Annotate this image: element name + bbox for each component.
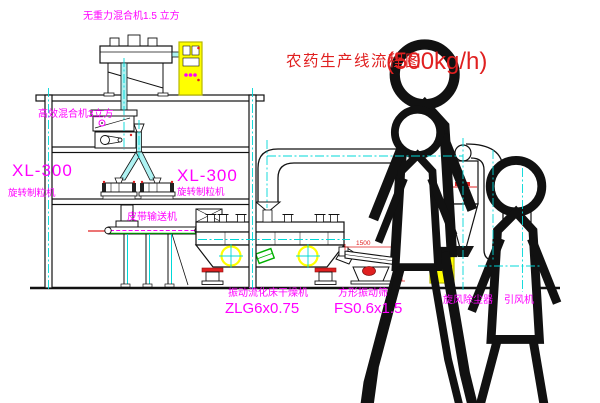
process-flow-diagram: 农药生产线流程图 (500kg/h) 无重力混合机1.5 立方 高效混合机3立方… [0, 0, 600, 403]
label-cyclone: 旋风除尘器 [443, 293, 493, 306]
fluid-bed-dryer [196, 209, 355, 285]
label-dryer-name: 振动流化床干燥机 [228, 286, 308, 299]
label-granulator-model-right: XL-300 [177, 166, 238, 185]
cad-drawing-canvas: 农药生产线流程图 (500kg/h) 无重力混合机1.5 立方 高效混合机3立方… [0, 0, 600, 403]
label-gravityless-mixer: 无重力混合机1.5 立方 [83, 9, 180, 22]
label-granulator-name-left: 旋转制粒机 [8, 187, 56, 199]
granulator-2 [139, 178, 175, 199]
dryer-support-right [315, 268, 336, 285]
y-splitter-pipe [119, 152, 156, 180]
label-granulator-model-left: XL-300 [12, 161, 73, 180]
label-belt-conveyor: 皮带输送机 [127, 210, 177, 223]
label-high-efficiency-mixer: 高效混合机3立方 [38, 107, 114, 120]
label-sieve-model: FS0.6x1.5 [334, 300, 402, 317]
label-sieve-dimension: 1500 [356, 240, 371, 247]
control-cabinet-1 [179, 42, 202, 95]
granulator-1 [101, 178, 137, 199]
label-sieve-name: 方形振动筛 [338, 286, 388, 299]
gravityless-mixer [100, 35, 191, 96]
drawing-title-capacity: (500kg/h) [386, 48, 487, 75]
label-granulator-name-right: 旋转制粒机 [177, 186, 225, 198]
belt-conveyor [88, 227, 201, 287]
label-fan: 引风机 [504, 293, 534, 306]
label-dryer-model: ZLG6x0.75 [225, 300, 299, 317]
dryer-support-left [202, 268, 223, 285]
